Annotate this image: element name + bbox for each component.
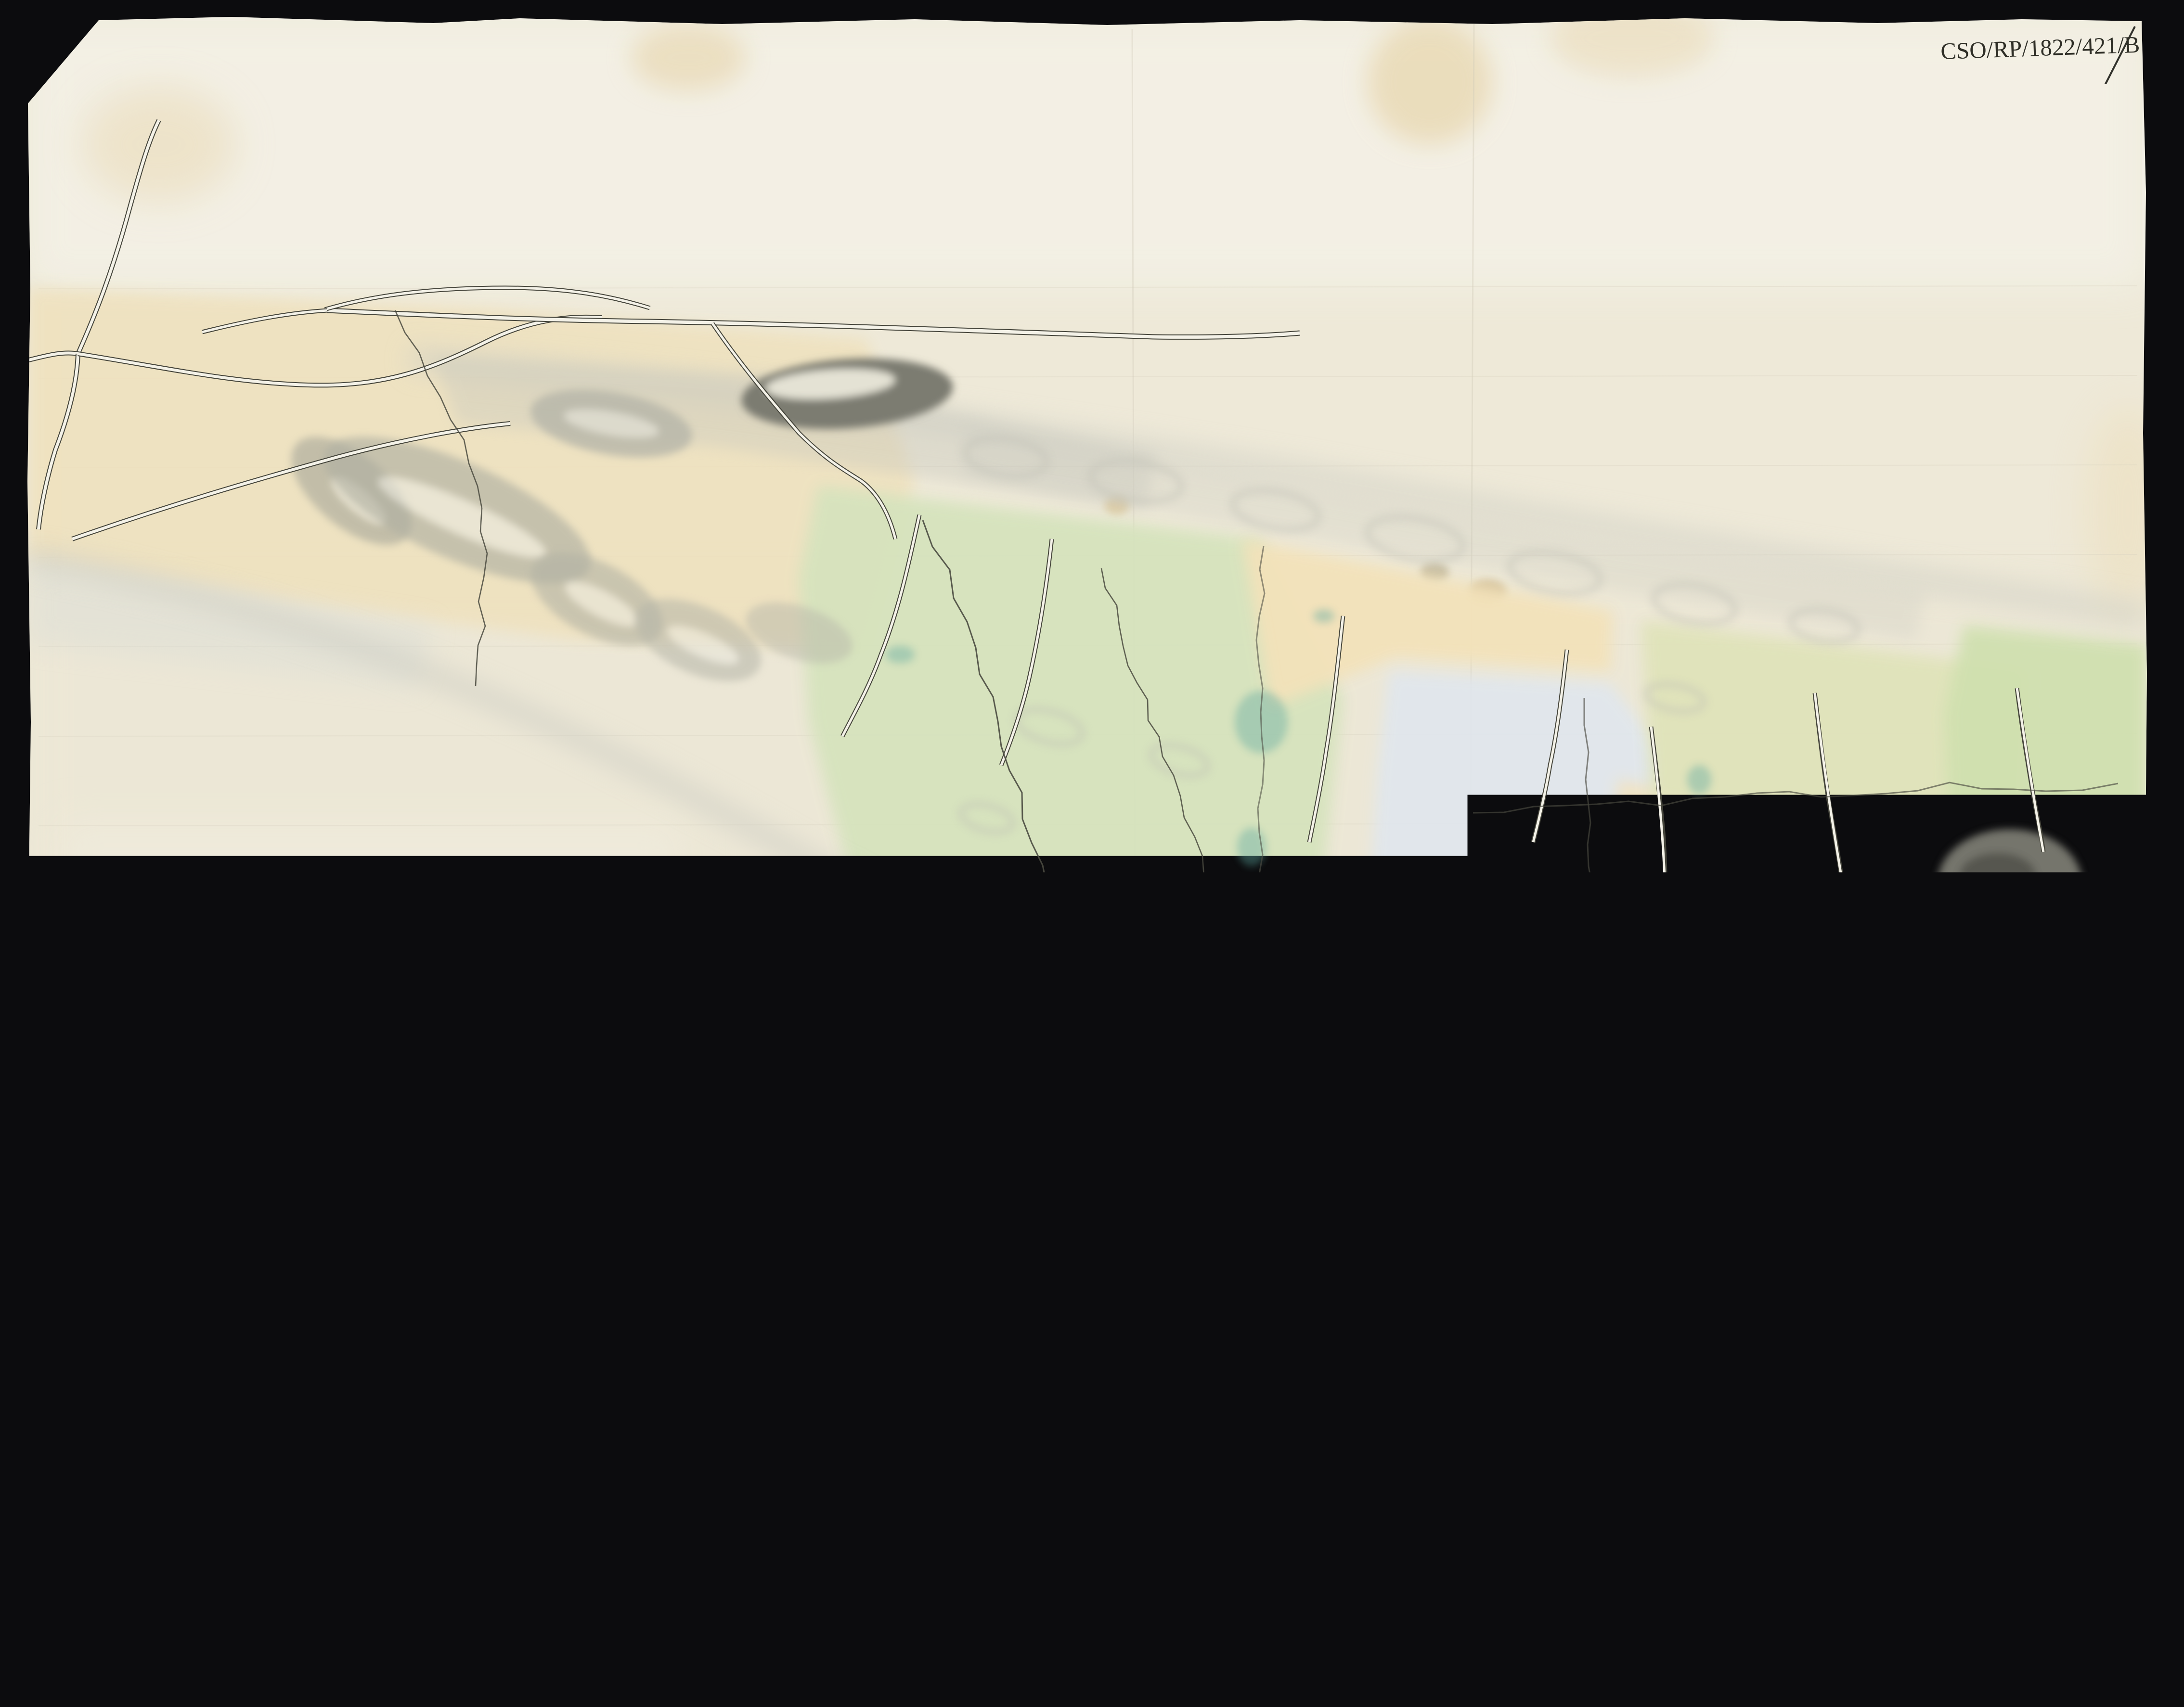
svg-text:to complete the new intended l: to complete the new intended line	[793, 1306, 1170, 1335]
svg-text:10: 10	[1819, 1466, 1836, 1485]
svg-text:9: 9	[1727, 1466, 1736, 1485]
svg-text:6100 Perches or: 6100 Perches or	[809, 1107, 1010, 1139]
svg-text:87654321: 87654321	[767, 1470, 862, 1484]
svg-text:5: 5	[1338, 1466, 1347, 1485]
svg-text:and the within=named Parish: and the within=named Parishes.	[696, 215, 1211, 252]
svg-text:Miles: Miles	[2035, 1084, 2076, 1104]
svg-text:ROAD: ROAD	[1424, 670, 1506, 697]
svg-text:1822.: 1822.	[1554, 1587, 1617, 1618]
svg-text:Macroomp: Macroomp	[1749, 252, 1846, 277]
svg-text:to Kealkil in the Parish o: to Kealkil in the Parish of Bantry; open…	[126, 170, 1902, 210]
svg-text:3: 3	[1143, 1466, 1152, 1485]
svg-text:Estimate: Estimate	[894, 1209, 993, 1241]
svg-text:NEW: NEW	[703, 445, 769, 472]
svg-text:A Map and Survey of the: A Map and Survey of the intended line of…	[306, 110, 2044, 150]
svg-text:Bride: Bride	[1750, 722, 1796, 748]
svg-text:from Cork to Kealkil 31 mi: from Cork to Kealkil 31 miles , to Balli…	[1159, 1107, 2065, 1134]
svg-text:of road , and Bridges include: of road , and Bridges included.	[801, 1350, 1153, 1379]
svg-text:16 to a Perch or £256 to a: 16 to a Perch or £256 to a Mile ,	[795, 1261, 1189, 1290]
svg-text:Bandon: Bandon	[2070, 1344, 2136, 1368]
svg-text:THE: THE	[503, 399, 563, 426]
svg-text:Carriganass: Carriganass	[221, 280, 323, 302]
svg-text:Miles: Miles	[1746, 1084, 1787, 1104]
svg-text:Keenra: Keenra	[804, 606, 849, 623]
svg-text:Togher: Togher	[864, 582, 908, 599]
svg-text:Inchexgeela: Inchexgeela	[1136, 293, 1243, 318]
svg-text:Dunmanway August 14: Dunmanway August 14	[1274, 1587, 1540, 1618]
svg-text:2: 2	[1047, 1466, 1055, 1485]
svg-text:LINE: LINE	[1107, 533, 1177, 560]
svg-text:Jeremiah O'Brien.: Jeremiah O'Brien.	[1803, 1549, 2012, 1579]
svg-text:19 miles and 20 Perches: 19 miles and 20 Perches	[748, 1139, 1039, 1169]
svg-text:Knocknanirk: Knocknanirk	[228, 768, 344, 793]
svg-text:Furlongs: Furlongs	[736, 1449, 807, 1471]
svg-text:Castle.: Castle.	[343, 277, 400, 299]
svg-text:Cast.: Cast.	[942, 584, 975, 602]
svg-text:n.: n.	[922, 359, 934, 377]
svg-text:Scale of Irish Miles. One to o: Scale of Irish Miles. One to one Inch,	[793, 1420, 1229, 1449]
svg-text:This newly intended line o: This newly intended line of road if comp…	[1150, 1035, 2066, 1063]
svg-text:7: 7	[1533, 1466, 1542, 1485]
svg-text:6: 6	[1435, 1466, 1444, 1485]
svg-text:1: 1	[949, 1466, 958, 1485]
svg-text:4: 4	[1241, 1466, 1250, 1485]
svg-text:S: S	[792, 1238, 803, 1264]
svg-text:8: 8	[1630, 1466, 1639, 1485]
svg-text:th: th	[1533, 1584, 1547, 1604]
